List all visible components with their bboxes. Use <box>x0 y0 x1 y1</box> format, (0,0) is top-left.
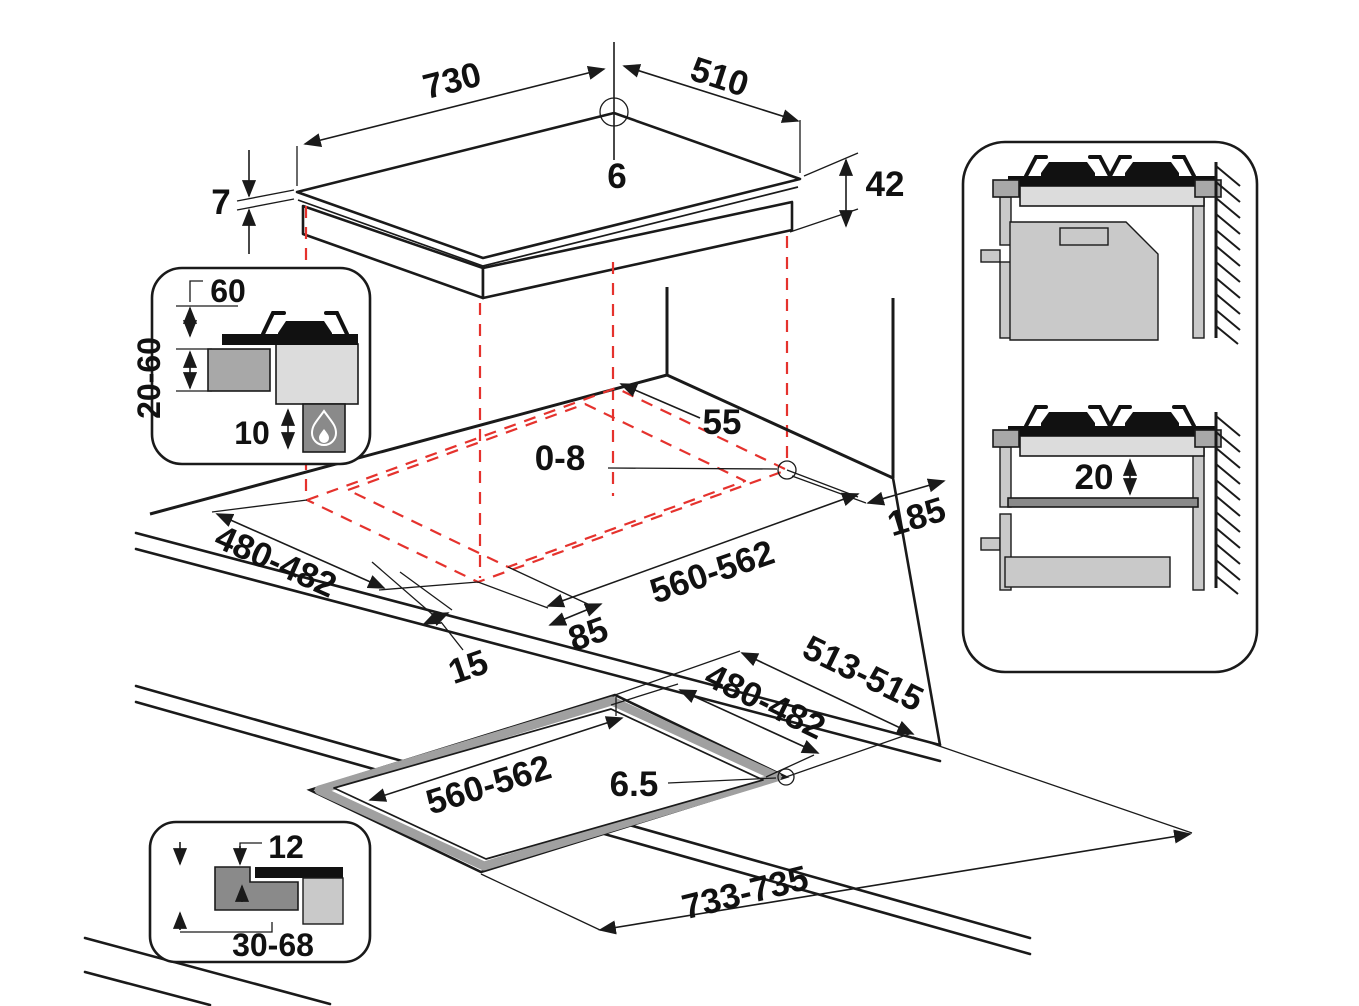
flush-worktop-front-edge-2 <box>85 972 210 1005</box>
dim-560-ext-left <box>478 582 548 608</box>
dim-15-line <box>424 613 448 624</box>
rebate-inset: 12 30-68 <box>150 822 370 963</box>
clearance-above-label: 60 <box>210 273 246 309</box>
dim-480b-ext-left <box>611 684 678 705</box>
shelf-gap-label: 20 <box>1075 458 1114 497</box>
section-above-shelf: 20 <box>981 407 1240 594</box>
oven-vent <box>1060 228 1108 245</box>
dim-7-ext-top <box>237 190 294 201</box>
dim-733-ext-left <box>481 874 600 930</box>
cabinet-tab-left2 <box>981 538 1000 550</box>
dim-side-overhang-label: 15 <box>443 642 493 692</box>
dim-55-line <box>621 384 700 418</box>
flush-hob-surface-bar <box>255 867 343 878</box>
hob-bar-bottom-section <box>1008 426 1216 436</box>
hob-body-section <box>276 344 358 404</box>
dim-depth-label: 510 <box>686 49 754 104</box>
gap-below-label: 10 <box>234 415 270 451</box>
dim-recess-width-label: 733-735 <box>678 858 812 927</box>
burner-cap <box>278 321 332 336</box>
wall-section-panel: 20 <box>963 142 1257 672</box>
burner-cap <box>1041 412 1095 426</box>
hob-isometric-view: 6 730 510 42 7 <box>211 42 904 298</box>
dim-42-ext-top <box>804 153 858 176</box>
hob-bar-top-section <box>1008 176 1216 186</box>
dim-560-ext-right <box>787 470 858 497</box>
dim-85-ext <box>508 567 592 606</box>
burner-cap <box>1125 412 1179 426</box>
dim-cutout-width-label: 560-562 <box>645 533 779 612</box>
dim-width-label: 730 <box>419 55 485 107</box>
worktop-slab <box>208 349 270 391</box>
section-above-oven <box>981 157 1240 344</box>
hob-band-top-section <box>1020 186 1204 206</box>
dim-480-ext-right <box>379 582 478 590</box>
worktop-back-edge-right <box>667 375 893 478</box>
dim-height-label: 42 <box>866 165 905 204</box>
cabinet-tab-left <box>981 250 1000 262</box>
dim-733-ext-right <box>913 737 1192 833</box>
cutout-dashed <box>348 404 745 567</box>
dim-7-ext-bottom <box>237 199 294 210</box>
clearance-inset: 60 20-60 10 <box>131 268 370 464</box>
drawer-front <box>1005 557 1170 587</box>
dim-side-clearance-label: 185 <box>883 490 950 544</box>
dim-15-leader <box>441 622 463 650</box>
dim-15-ext-a <box>372 562 432 614</box>
dim-185-ext <box>792 476 866 503</box>
dim-cutout-depth-label: 480-482 <box>209 518 342 606</box>
shelf <box>1008 498 1198 507</box>
dim-corner-radius-label: 6 <box>607 157 626 196</box>
worktop-thickness-label: 20-60 <box>131 337 167 419</box>
dim-cutout-radius-label: 0-8 <box>535 439 586 478</box>
panel-thickness-label: 30-68 <box>232 927 314 963</box>
clamp-left-bottom-section <box>993 430 1019 447</box>
cabinet-side-right <box>1193 197 1204 338</box>
dim-480-ext-left <box>212 500 307 512</box>
dim-42-ext-bottom <box>790 209 858 232</box>
dim-glass-thickness-label: 7 <box>211 183 230 222</box>
cabinet-side-right2 <box>1193 447 1204 590</box>
burner-cap <box>1041 162 1095 176</box>
rebate-depth-label: 12 <box>268 829 304 865</box>
dim-recess-radius-label: 6.5 <box>610 765 659 804</box>
dim-rear-gap-label: 55 <box>703 403 742 442</box>
hob-band-bottom-section <box>1020 436 1204 456</box>
dim-0-8-leader <box>608 468 777 469</box>
flush-hob-body <box>303 878 343 924</box>
burner-cap <box>1125 162 1179 176</box>
installation-diagram: 6 730 510 42 7 <box>0 0 1359 1006</box>
clamp-left-top-section <box>993 180 1019 197</box>
dim-480b-ext-right <box>766 755 814 777</box>
